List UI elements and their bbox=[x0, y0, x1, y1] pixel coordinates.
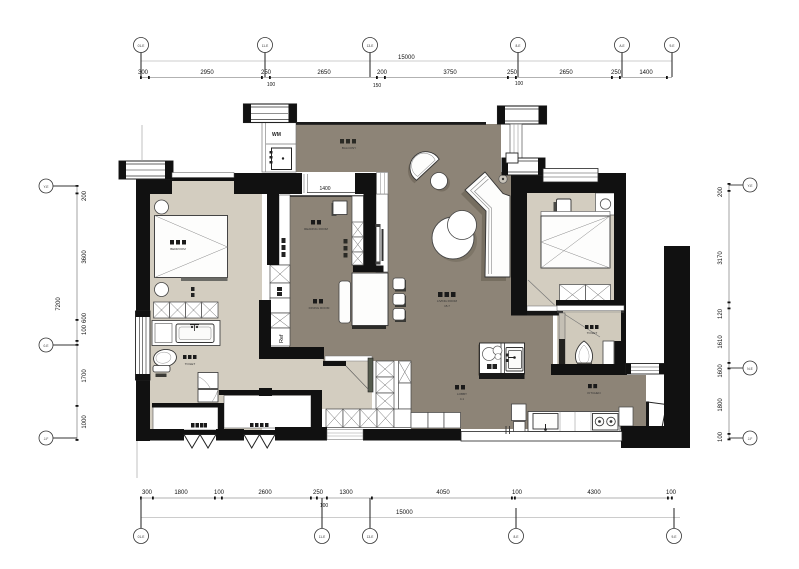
svg-text:250: 250 bbox=[261, 70, 272, 76]
svg-text:1610: 1610 bbox=[718, 335, 724, 349]
svg-text:3170: 3170 bbox=[718, 251, 724, 265]
svg-text:120: 120 bbox=[718, 308, 724, 319]
svg-text:1600: 1600 bbox=[718, 364, 724, 378]
svg-text:N-E: N-E bbox=[747, 367, 753, 371]
svg-text:0-E: 0-E bbox=[44, 344, 49, 348]
svg-text:Y-E: Y-E bbox=[43, 185, 48, 189]
svg-text:2650: 2650 bbox=[317, 70, 331, 76]
svg-text:100: 100 bbox=[718, 431, 724, 442]
svg-text:WM: WM bbox=[272, 132, 281, 138]
svg-text:15.7: 15.7 bbox=[444, 304, 450, 308]
svg-text:J-F: J-F bbox=[44, 437, 49, 441]
svg-text:100: 100 bbox=[82, 324, 88, 335]
svg-text:J-F: J-F bbox=[748, 437, 753, 441]
svg-text:100: 100 bbox=[320, 503, 329, 509]
svg-text:600: 600 bbox=[82, 312, 88, 323]
svg-text:300: 300 bbox=[142, 490, 153, 496]
svg-text:200: 200 bbox=[377, 70, 388, 76]
svg-text:100: 100 bbox=[666, 490, 677, 496]
svg-text:7200: 7200 bbox=[56, 297, 62, 311]
svg-text:8-E: 8-E bbox=[514, 535, 519, 539]
svg-text:250: 250 bbox=[313, 490, 324, 496]
svg-text:100: 100 bbox=[267, 82, 276, 88]
svg-text:13-E: 13-E bbox=[367, 44, 374, 48]
svg-text:9-E: 9-E bbox=[672, 535, 677, 539]
svg-text:250: 250 bbox=[611, 70, 622, 76]
svg-text:Y-E: Y-E bbox=[747, 184, 752, 188]
svg-text:BEDROOM: BEDROOM bbox=[170, 247, 186, 251]
svg-text:4300: 4300 bbox=[587, 490, 601, 496]
svg-text:1400: 1400 bbox=[319, 186, 330, 192]
svg-text:1400: 1400 bbox=[639, 70, 653, 76]
svg-text:3600: 3600 bbox=[82, 250, 88, 264]
svg-text:1800: 1800 bbox=[174, 490, 188, 496]
svg-text:DINING ROOM: DINING ROOM bbox=[309, 306, 330, 310]
svg-text:Ref: Ref bbox=[279, 334, 285, 343]
svg-text:READING ROOM: READING ROOM bbox=[304, 227, 328, 231]
svg-text:1800: 1800 bbox=[718, 398, 724, 412]
svg-text:3750: 3750 bbox=[443, 70, 457, 76]
svg-text:13-E: 13-E bbox=[367, 535, 374, 539]
svg-text:01-E: 01-E bbox=[138, 535, 145, 539]
svg-text:15000: 15000 bbox=[398, 55, 415, 61]
svg-text:LOBBY: LOBBY bbox=[457, 392, 467, 396]
svg-text:01-E: 01-E bbox=[138, 44, 145, 48]
svg-text:100: 100 bbox=[214, 490, 225, 496]
svg-text:11-E: 11-E bbox=[319, 535, 326, 539]
svg-text:KITCHEN: KITCHEN bbox=[587, 391, 600, 395]
svg-text:100: 100 bbox=[512, 490, 523, 496]
svg-text:8-E: 8-E bbox=[516, 44, 521, 48]
svg-text:150: 150 bbox=[373, 83, 382, 89]
svg-text:11-E: 11-E bbox=[262, 44, 269, 48]
svg-text:2950: 2950 bbox=[200, 70, 214, 76]
svg-text:250: 250 bbox=[507, 70, 518, 76]
svg-text:TOILET: TOILET bbox=[185, 362, 196, 366]
svg-text:2650: 2650 bbox=[559, 70, 573, 76]
svg-text:100: 100 bbox=[515, 81, 524, 87]
svg-text:4050: 4050 bbox=[436, 490, 450, 496]
svg-text:A-E: A-E bbox=[619, 44, 624, 48]
svg-text:200: 200 bbox=[82, 190, 88, 201]
svg-text:15000: 15000 bbox=[396, 510, 413, 516]
svg-text:1700: 1700 bbox=[82, 369, 88, 383]
svg-text:1000: 1000 bbox=[82, 415, 88, 429]
svg-text:BALCONY: BALCONY bbox=[342, 146, 356, 150]
svg-text:TOILET: TOILET bbox=[587, 331, 598, 335]
svg-text:4.1: 4.1 bbox=[460, 397, 465, 401]
svg-text:300: 300 bbox=[138, 70, 149, 76]
svg-text:LIVING ROOM: LIVING ROOM bbox=[437, 299, 458, 303]
svg-text:200: 200 bbox=[718, 186, 724, 197]
svg-text:1300: 1300 bbox=[339, 490, 353, 496]
svg-text:9-E: 9-E bbox=[670, 44, 675, 48]
svg-text:2600: 2600 bbox=[258, 490, 272, 496]
